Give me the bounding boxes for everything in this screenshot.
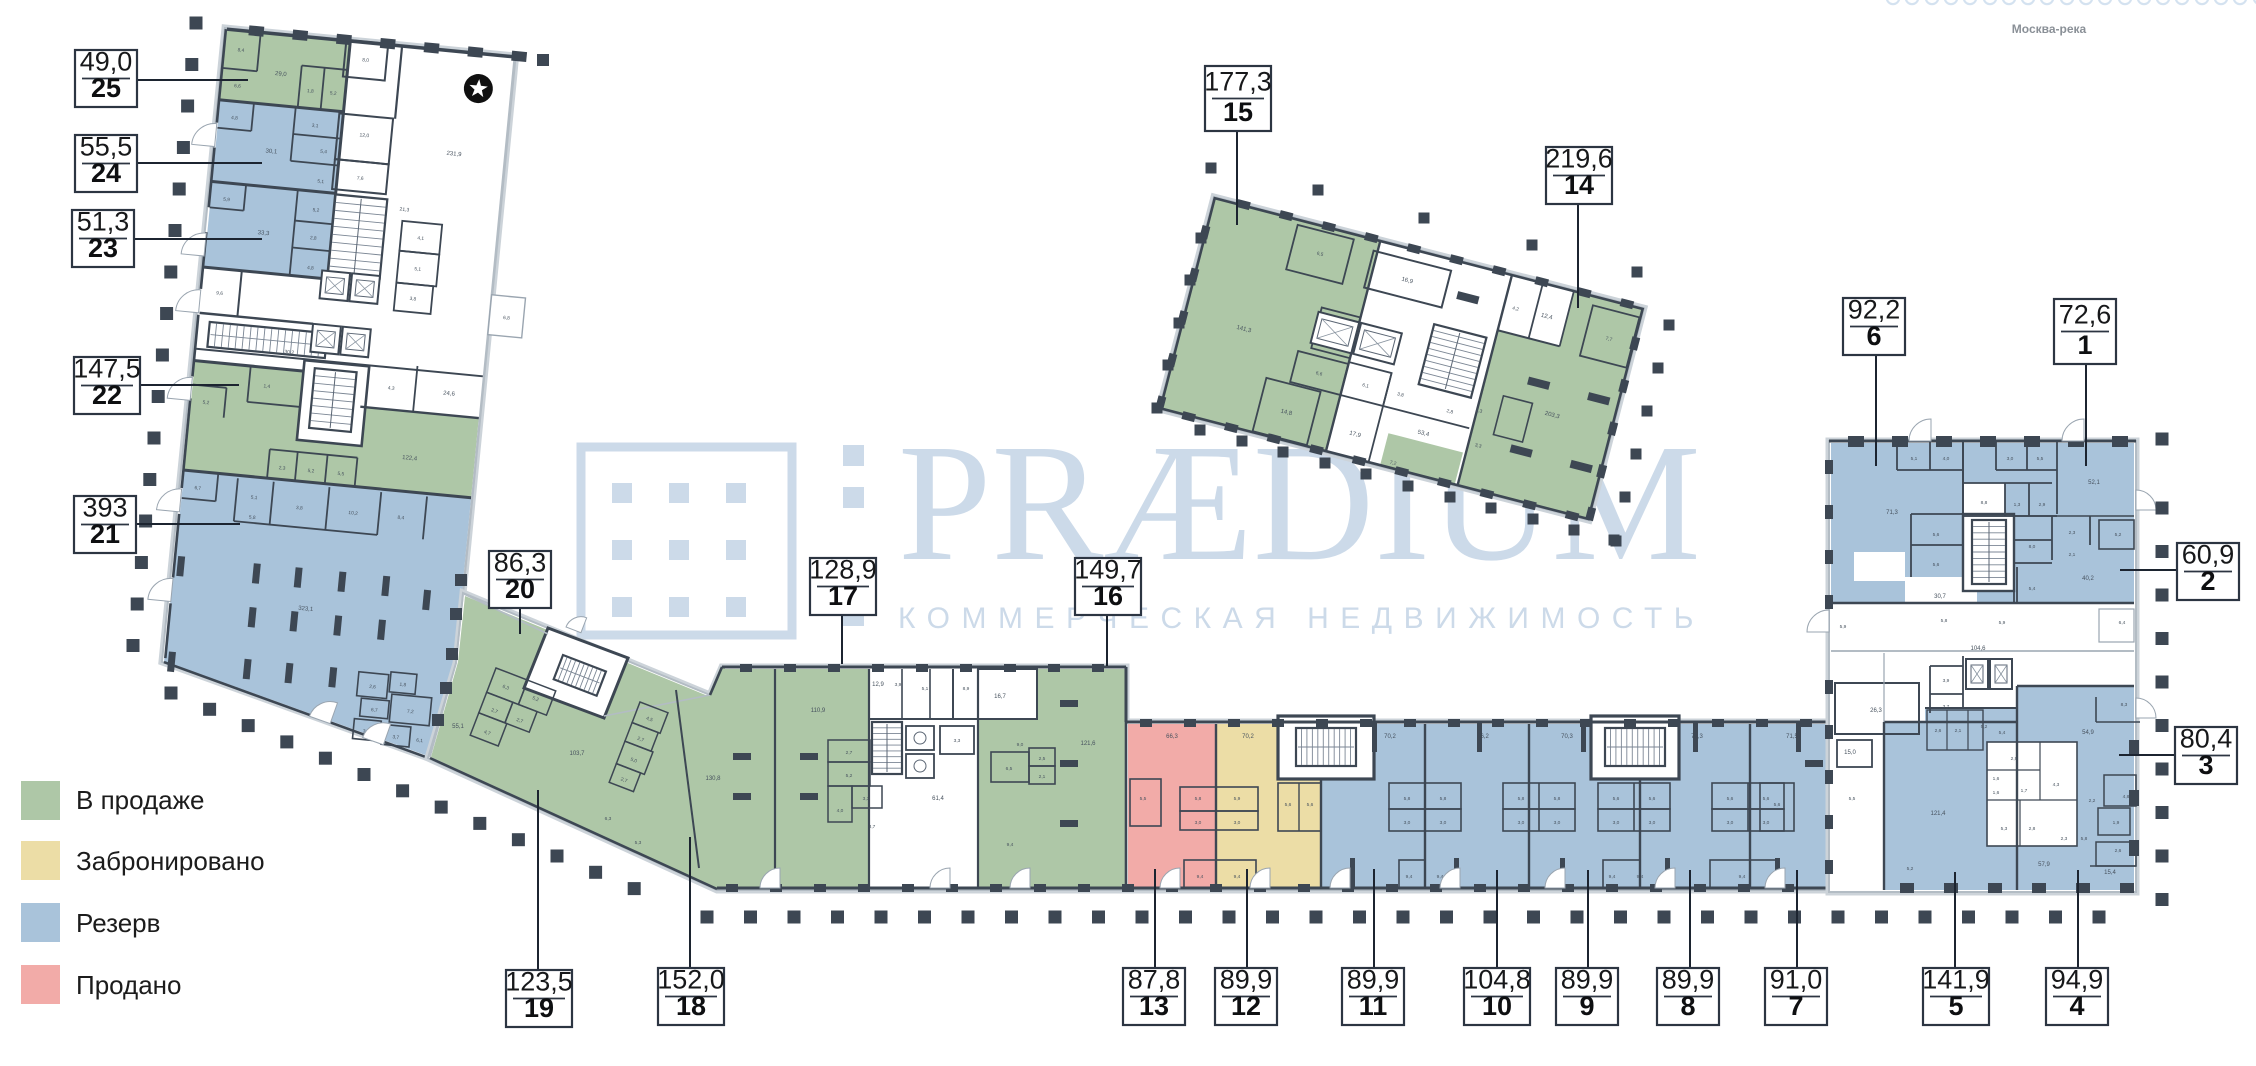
svg-text:3,8: 3,8 (409, 296, 417, 303)
svg-text:121,4: 121,4 (1930, 811, 1946, 817)
svg-text:4,3: 4,3 (2053, 782, 2060, 788)
svg-text:6: 6 (1866, 321, 1881, 351)
svg-text:4,8: 4,8 (307, 265, 315, 272)
svg-text:2: 2 (2200, 566, 2215, 596)
svg-text:33,3: 33,3 (257, 230, 270, 237)
svg-text:51,3: 51,3 (77, 207, 130, 237)
svg-text:3,0: 3,0 (1518, 820, 1525, 826)
svg-text:149,7: 149,7 (1074, 555, 1142, 585)
svg-text:5,2: 5,2 (1981, 724, 1988, 730)
svg-text:177,3: 177,3 (1204, 67, 1272, 97)
svg-text:5,6: 5,6 (1933, 532, 1940, 538)
svg-text:4,8: 4,8 (231, 115, 239, 122)
svg-text:8,4: 8,4 (397, 515, 405, 522)
svg-text:5,5: 5,5 (1849, 796, 1856, 802)
svg-text:2,6: 2,6 (2115, 848, 2122, 854)
svg-text:54,9: 54,9 (2082, 730, 2094, 736)
svg-text:5,4: 5,4 (1999, 730, 2006, 736)
svg-text:30,2: 30,2 (284, 349, 294, 356)
svg-text:5,6: 5,6 (1763, 796, 1770, 802)
svg-text:121,6: 121,6 (1080, 741, 1096, 747)
svg-text:3,0: 3,0 (1649, 820, 1656, 826)
svg-text:5,2: 5,2 (307, 468, 315, 475)
svg-text:4,0: 4,0 (837, 808, 844, 814)
svg-text:2,2: 2,2 (2089, 798, 2096, 804)
svg-text:2,1: 2,1 (1039, 774, 1046, 780)
svg-text:2,5: 2,5 (1039, 756, 1046, 762)
svg-text:6,4: 6,4 (2119, 620, 2126, 626)
svg-text:5,6: 5,6 (1613, 796, 1620, 802)
svg-text:18: 18 (676, 991, 706, 1021)
svg-text:2,1: 2,1 (1955, 728, 1962, 734)
svg-text:19: 19 (524, 993, 554, 1023)
svg-text:86,3: 86,3 (494, 548, 547, 578)
svg-text:2,3: 2,3 (2061, 836, 2068, 842)
svg-text:5,2: 5,2 (846, 773, 853, 779)
svg-text:5,5: 5,5 (1140, 796, 1147, 802)
svg-text:2,9: 2,9 (2039, 502, 2046, 508)
svg-text:26,3: 26,3 (1870, 708, 1882, 714)
svg-text:3,0: 3,0 (1554, 820, 1561, 826)
svg-text:5,9: 5,9 (1999, 620, 2006, 626)
svg-text:12: 12 (1231, 991, 1261, 1021)
svg-text:8,4: 8,4 (237, 47, 245, 54)
svg-text:3,0: 3,0 (1195, 820, 1202, 826)
svg-text:9,0: 9,0 (1017, 742, 1024, 748)
svg-text:1,8: 1,8 (307, 88, 315, 95)
svg-text:2,3: 2,3 (278, 465, 286, 472)
svg-text:Москва-река: Москва-река (2012, 22, 2087, 36)
svg-text:89,9: 89,9 (1220, 965, 1273, 995)
svg-text:5,8: 5,8 (1554, 796, 1561, 802)
svg-text:5,8: 5,8 (1404, 796, 1411, 802)
svg-text:104,6: 104,6 (1970, 646, 1986, 652)
svg-text:8,8: 8,8 (1981, 500, 1988, 506)
svg-text:25: 25 (91, 73, 121, 103)
svg-text:123,5: 123,5 (505, 967, 573, 997)
svg-text:5,6: 5,6 (1774, 802, 1781, 808)
svg-text:147,5: 147,5 (73, 354, 141, 384)
svg-text:21: 21 (90, 519, 120, 549)
svg-text:55,1: 55,1 (452, 724, 464, 730)
svg-text:49,0: 49,0 (80, 47, 133, 77)
svg-text:55,5: 55,5 (80, 132, 133, 162)
svg-text:92,2: 92,2 (1848, 295, 1901, 325)
svg-text:24: 24 (91, 158, 121, 188)
svg-text:11: 11 (1359, 991, 1388, 1021)
svg-text:2,7: 2,7 (846, 750, 853, 756)
svg-text:Забронировано: Забронировано (76, 846, 265, 876)
svg-text:80,4: 80,4 (2180, 724, 2233, 754)
svg-text:5,6: 5,6 (1649, 796, 1656, 802)
svg-text:3,0: 3,0 (1613, 820, 1620, 826)
svg-text:30,7: 30,7 (1934, 594, 1946, 600)
svg-text:10,2: 10,2 (348, 510, 358, 517)
svg-text:1,6: 1,6 (1993, 776, 2000, 782)
svg-text:1,7: 1,7 (2021, 788, 2028, 794)
svg-text:5,6: 5,6 (1727, 796, 1734, 802)
svg-text:72,6: 72,6 (2059, 300, 2112, 330)
svg-text:5,8: 5,8 (2081, 836, 2088, 842)
svg-text:1,8: 1,8 (399, 682, 407, 689)
svg-text:9: 9 (1579, 991, 1594, 1021)
svg-text:9,4: 9,4 (1406, 874, 1413, 880)
svg-text:57,9: 57,9 (2038, 862, 2050, 868)
svg-text:70,2: 70,2 (1242, 734, 1254, 740)
svg-text:КОММЕРЧЕСКАЯ НЕДВИЖИМОСТЬ: КОММЕРЧЕСКАЯ НЕДВИЖИМОСТЬ (898, 602, 1705, 635)
svg-text:15,4: 15,4 (2104, 870, 2116, 876)
svg-text:9,6: 9,6 (216, 290, 224, 297)
svg-text:152,0: 152,0 (657, 965, 725, 995)
svg-text:5,2: 5,2 (312, 207, 320, 214)
svg-text:1,6: 1,6 (1993, 790, 2000, 796)
svg-text:29,0: 29,0 (275, 71, 288, 78)
svg-text:5,2: 5,2 (202, 400, 210, 407)
svg-text:71,3: 71,3 (1886, 510, 1898, 516)
svg-text:4,8: 4,8 (2123, 794, 2130, 800)
svg-text:В продаже: В продаже (76, 785, 204, 815)
svg-text:5,3: 5,3 (2001, 826, 2008, 832)
svg-text:6,6: 6,6 (234, 83, 242, 90)
svg-text:3,1: 3,1 (311, 123, 319, 130)
svg-text:3,9: 3,9 (1943, 678, 1950, 684)
svg-text:4,1: 4,1 (417, 235, 425, 242)
svg-text:40,2: 40,2 (2082, 576, 2094, 582)
svg-text:16: 16 (1093, 581, 1123, 611)
svg-text:5,8: 5,8 (1195, 796, 1202, 802)
svg-text:5,1: 5,1 (1911, 456, 1918, 462)
svg-text:9,4: 9,4 (1739, 874, 1746, 880)
svg-text:103,7: 103,7 (569, 751, 585, 757)
svg-text:3,0: 3,0 (1234, 820, 1241, 826)
svg-text:9,4: 9,4 (1609, 874, 1616, 880)
svg-text:61,4: 61,4 (932, 796, 944, 802)
svg-text:6,5: 6,5 (1006, 766, 1013, 772)
svg-text:3,8: 3,8 (296, 505, 304, 512)
svg-text:12,9: 12,9 (872, 682, 884, 688)
svg-text:94,9: 94,9 (2051, 965, 2104, 995)
svg-text:4,0: 4,0 (1943, 456, 1950, 462)
svg-text:66,3: 66,3 (1166, 734, 1178, 740)
svg-text:7,6: 7,6 (357, 175, 365, 182)
svg-text:393: 393 (82, 493, 127, 523)
svg-text:9,4: 9,4 (1007, 842, 1014, 848)
svg-text:3,7: 3,7 (392, 734, 400, 741)
svg-text:219,6: 219,6 (1545, 144, 1613, 174)
svg-text:5,8: 5,8 (1941, 618, 1948, 624)
svg-text:2,8: 2,8 (310, 235, 318, 242)
svg-text:1,4: 1,4 (263, 383, 271, 390)
svg-text:5,6: 5,6 (1285, 802, 1292, 808)
svg-text:7: 7 (1788, 991, 1803, 1021)
svg-text:6,8: 6,8 (503, 315, 511, 322)
svg-text:104,8: 104,8 (1463, 965, 1531, 995)
svg-text:5,1: 5,1 (922, 686, 929, 692)
svg-text:30,1: 30,1 (265, 148, 278, 155)
svg-text:5,3: 5,3 (635, 840, 642, 846)
svg-text:5,8: 5,8 (1440, 796, 1447, 802)
svg-text:15,0: 15,0 (1844, 750, 1856, 756)
svg-text:14: 14 (1564, 170, 1594, 200)
svg-text:3,3: 3,3 (954, 738, 961, 744)
svg-text:3,0: 3,0 (1727, 820, 1734, 826)
svg-text:5,4: 5,4 (320, 149, 328, 156)
svg-text:2,8: 2,8 (2029, 826, 2036, 832)
svg-text:22: 22 (92, 380, 122, 410)
svg-text:3,9: 3,9 (895, 682, 902, 688)
svg-text:Продано: Продано (76, 970, 182, 1000)
svg-text:5,4: 5,4 (2029, 586, 2036, 592)
svg-text:5,1: 5,1 (250, 495, 258, 502)
svg-text:5: 5 (1948, 991, 1963, 1021)
svg-text:2,9: 2,9 (2011, 756, 2018, 762)
svg-text:15: 15 (1223, 97, 1253, 127)
svg-text:1,9: 1,9 (2113, 820, 2120, 826)
svg-text:21,3: 21,3 (399, 207, 409, 214)
svg-text:16,7: 16,7 (994, 694, 1006, 700)
svg-text:5,1: 5,1 (317, 179, 325, 186)
svg-text:5,2: 5,2 (330, 90, 338, 97)
svg-text:89,9: 89,9 (1662, 965, 1715, 995)
svg-text:8: 8 (1680, 991, 1695, 1021)
svg-text:20: 20 (505, 574, 535, 604)
svg-text:70,3: 70,3 (1561, 734, 1573, 740)
svg-text:12,0: 12,0 (359, 132, 369, 139)
svg-text:13: 13 (1139, 991, 1169, 1021)
svg-text:89,9: 89,9 (1347, 965, 1400, 995)
svg-text:6,7: 6,7 (371, 707, 379, 714)
svg-text:5,2: 5,2 (2115, 532, 2122, 538)
svg-text:10: 10 (1482, 991, 1512, 1021)
svg-text:6,7: 6,7 (194, 485, 202, 492)
svg-text:87,8: 87,8 (1128, 965, 1181, 995)
svg-text:5,5: 5,5 (337, 471, 345, 478)
svg-text:5,9: 5,9 (1234, 796, 1241, 802)
svg-text:17: 17 (828, 581, 858, 611)
svg-text:3,0: 3,0 (2007, 456, 2014, 462)
svg-text:2,3: 2,3 (2069, 530, 2076, 536)
svg-text:52,1: 52,1 (2088, 480, 2100, 486)
svg-text:2,6: 2,6 (369, 684, 377, 691)
svg-text:5,1: 5,1 (414, 266, 422, 273)
svg-text:128,9: 128,9 (809, 555, 877, 585)
svg-text:3,0: 3,0 (1440, 820, 1447, 826)
svg-text:9,4: 9,4 (1197, 874, 1204, 880)
svg-text:110,9: 110,9 (811, 708, 826, 714)
svg-text:60,9: 60,9 (2182, 540, 2235, 570)
svg-text:8,0: 8,0 (2029, 544, 2036, 550)
svg-text:1,3: 1,3 (2014, 502, 2021, 508)
svg-text:4,3: 4,3 (388, 385, 396, 392)
svg-text:5,8: 5,8 (249, 515, 257, 522)
svg-text:89,9: 89,9 (1561, 965, 1614, 995)
svg-text:5,6: 5,6 (1307, 802, 1314, 808)
svg-text:5,9: 5,9 (1840, 624, 1847, 630)
svg-text:130,8: 130,8 (705, 776, 721, 782)
svg-text:2,6: 2,6 (1935, 728, 1942, 734)
svg-text:24,6: 24,6 (443, 391, 456, 398)
svg-text:3: 3 (2198, 750, 2213, 780)
svg-text:2,1: 2,1 (2069, 552, 2076, 558)
svg-text:8,9: 8,9 (963, 686, 970, 692)
svg-text:141,9: 141,9 (1922, 965, 1990, 995)
svg-text:3,0: 3,0 (1404, 820, 1411, 826)
svg-text:3,0: 3,0 (1763, 820, 1770, 826)
svg-text:7,2: 7,2 (407, 709, 415, 716)
svg-text:5,9: 5,9 (223, 197, 231, 204)
svg-text:23: 23 (88, 233, 118, 263)
svg-text:1: 1 (2077, 330, 2092, 360)
svg-text:5,5: 5,5 (2037, 456, 2044, 462)
svg-text:8,3: 8,3 (2121, 702, 2128, 708)
svg-text:70,2: 70,2 (1384, 734, 1396, 740)
svg-text:91,0: 91,0 (1770, 965, 1823, 995)
svg-text:Резерв: Резерв (76, 908, 160, 938)
svg-text:4: 4 (2069, 991, 2084, 1021)
svg-text:5,2: 5,2 (1907, 866, 1914, 872)
svg-text:9,4: 9,4 (1234, 874, 1241, 880)
svg-text:5,8: 5,8 (1518, 796, 1525, 802)
svg-text:3,7: 3,7 (1943, 704, 1950, 710)
svg-text:6,3: 6,3 (605, 816, 612, 822)
svg-text:5,6: 5,6 (1933, 562, 1940, 568)
svg-text:6,1: 6,1 (416, 738, 424, 745)
svg-text:8,0: 8,0 (362, 57, 370, 64)
